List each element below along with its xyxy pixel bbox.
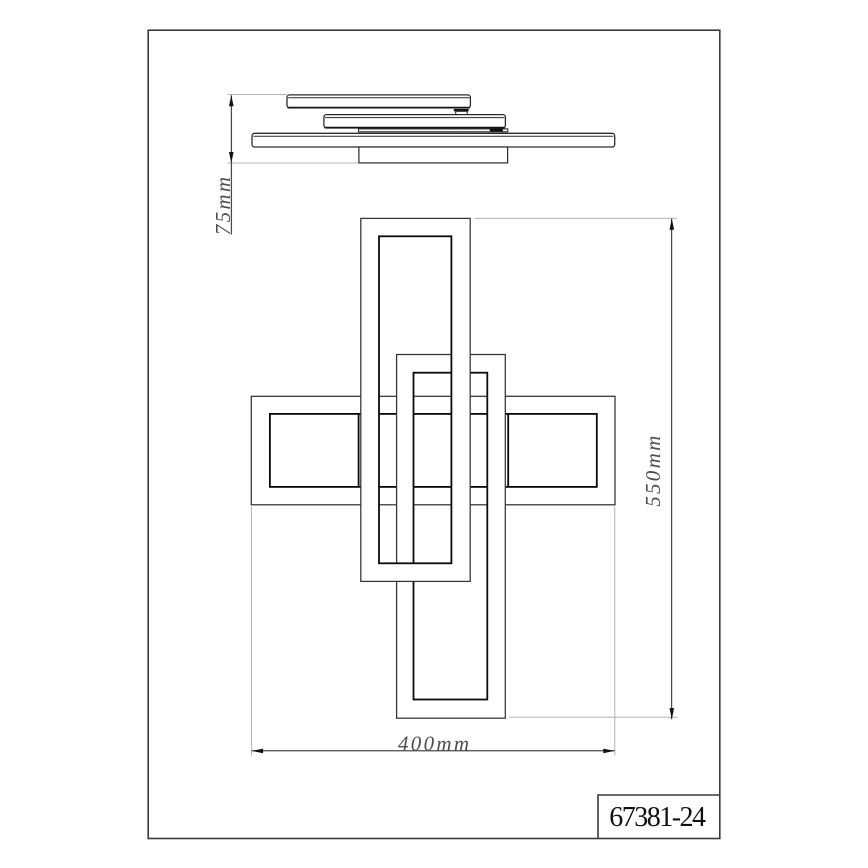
svg-text:400mm: 400mm [398, 731, 471, 755]
svg-text:75mm: 75mm [211, 175, 235, 236]
svg-text:67381-24: 67381-24 [609, 802, 706, 833]
svg-text:550mm: 550mm [641, 433, 665, 506]
